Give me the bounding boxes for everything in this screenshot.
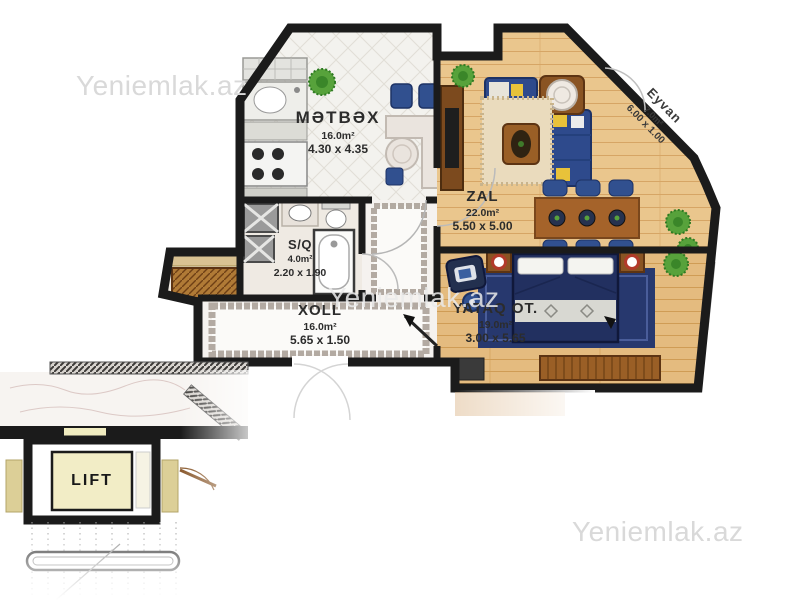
room-label-kitchen: MƏTBƏX 16.0m² 4.30 x 4.35 — [258, 108, 418, 156]
dining-chair — [543, 180, 567, 196]
lift-label: LIFT — [52, 472, 132, 490]
wardrobe — [172, 268, 238, 298]
runner-rug — [374, 206, 424, 292]
entrance-opening — [292, 356, 348, 368]
room-dimensions: 2.20 x 1.90 — [252, 267, 348, 279]
watermark-center: Yeniemlak.az — [328, 282, 500, 314]
dresser — [540, 356, 660, 380]
room-name: S/Q — [252, 238, 348, 253]
living-rug — [482, 98, 552, 184]
room-area: 16.0m² — [258, 130, 418, 142]
room-name: MƏTBƏX — [258, 108, 418, 128]
room-label-bathroom: S/Q 4.0m² 2.20 x 1.90 — [252, 238, 348, 279]
dining-chair — [576, 180, 600, 196]
door-panel — [162, 460, 178, 512]
room-name: ZAL — [425, 188, 540, 205]
fade-overlay — [180, 370, 270, 530]
pillow — [568, 258, 613, 274]
bathroom-sink — [282, 200, 318, 226]
room-area: 22.0m² — [425, 207, 540, 219]
room-dimensions: 4.30 x 4.35 — [258, 143, 418, 157]
plant — [452, 65, 474, 87]
nightstand — [487, 252, 511, 272]
bedroom-bench — [458, 358, 484, 380]
room-area: 4.0m² — [252, 255, 348, 266]
room-dimensions: 3.00 x 5.65 — [408, 332, 583, 346]
bar-chair — [391, 84, 412, 108]
plant — [664, 252, 688, 276]
room-area: 19.0m² — [408, 319, 583, 331]
room-label-living: ZAL 22.0m² 5.50 x 5.00 — [425, 188, 540, 234]
door-panel — [6, 460, 22, 512]
dining-chair — [609, 180, 633, 196]
pillow — [518, 258, 563, 274]
nightstand — [620, 252, 644, 272]
floor-plan-page: MƏTBƏX 16.0m² 4.30 x 4.35 ZAL 22.0m² 5.5… — [0, 0, 800, 600]
room-dimensions: 5.65 x 1.50 — [245, 334, 395, 348]
fade-overlay — [455, 390, 595, 420]
entrance-door-arcs — [294, 364, 350, 420]
plant — [309, 69, 335, 95]
watermark-bottom-right: Yeniemlak.az — [572, 516, 744, 548]
plant — [666, 210, 690, 234]
room-area: 16.0m² — [245, 321, 395, 333]
vent-shaft-icon — [244, 204, 278, 232]
room-dimensions: 5.50 x 5.00 — [425, 220, 540, 234]
watermark-top-left: Yeniemlak.az — [76, 70, 248, 102]
tv-cabinet — [441, 86, 463, 190]
dining-set — [535, 180, 639, 252]
fade-overlay — [0, 528, 270, 600]
bar-chair — [386, 168, 403, 185]
